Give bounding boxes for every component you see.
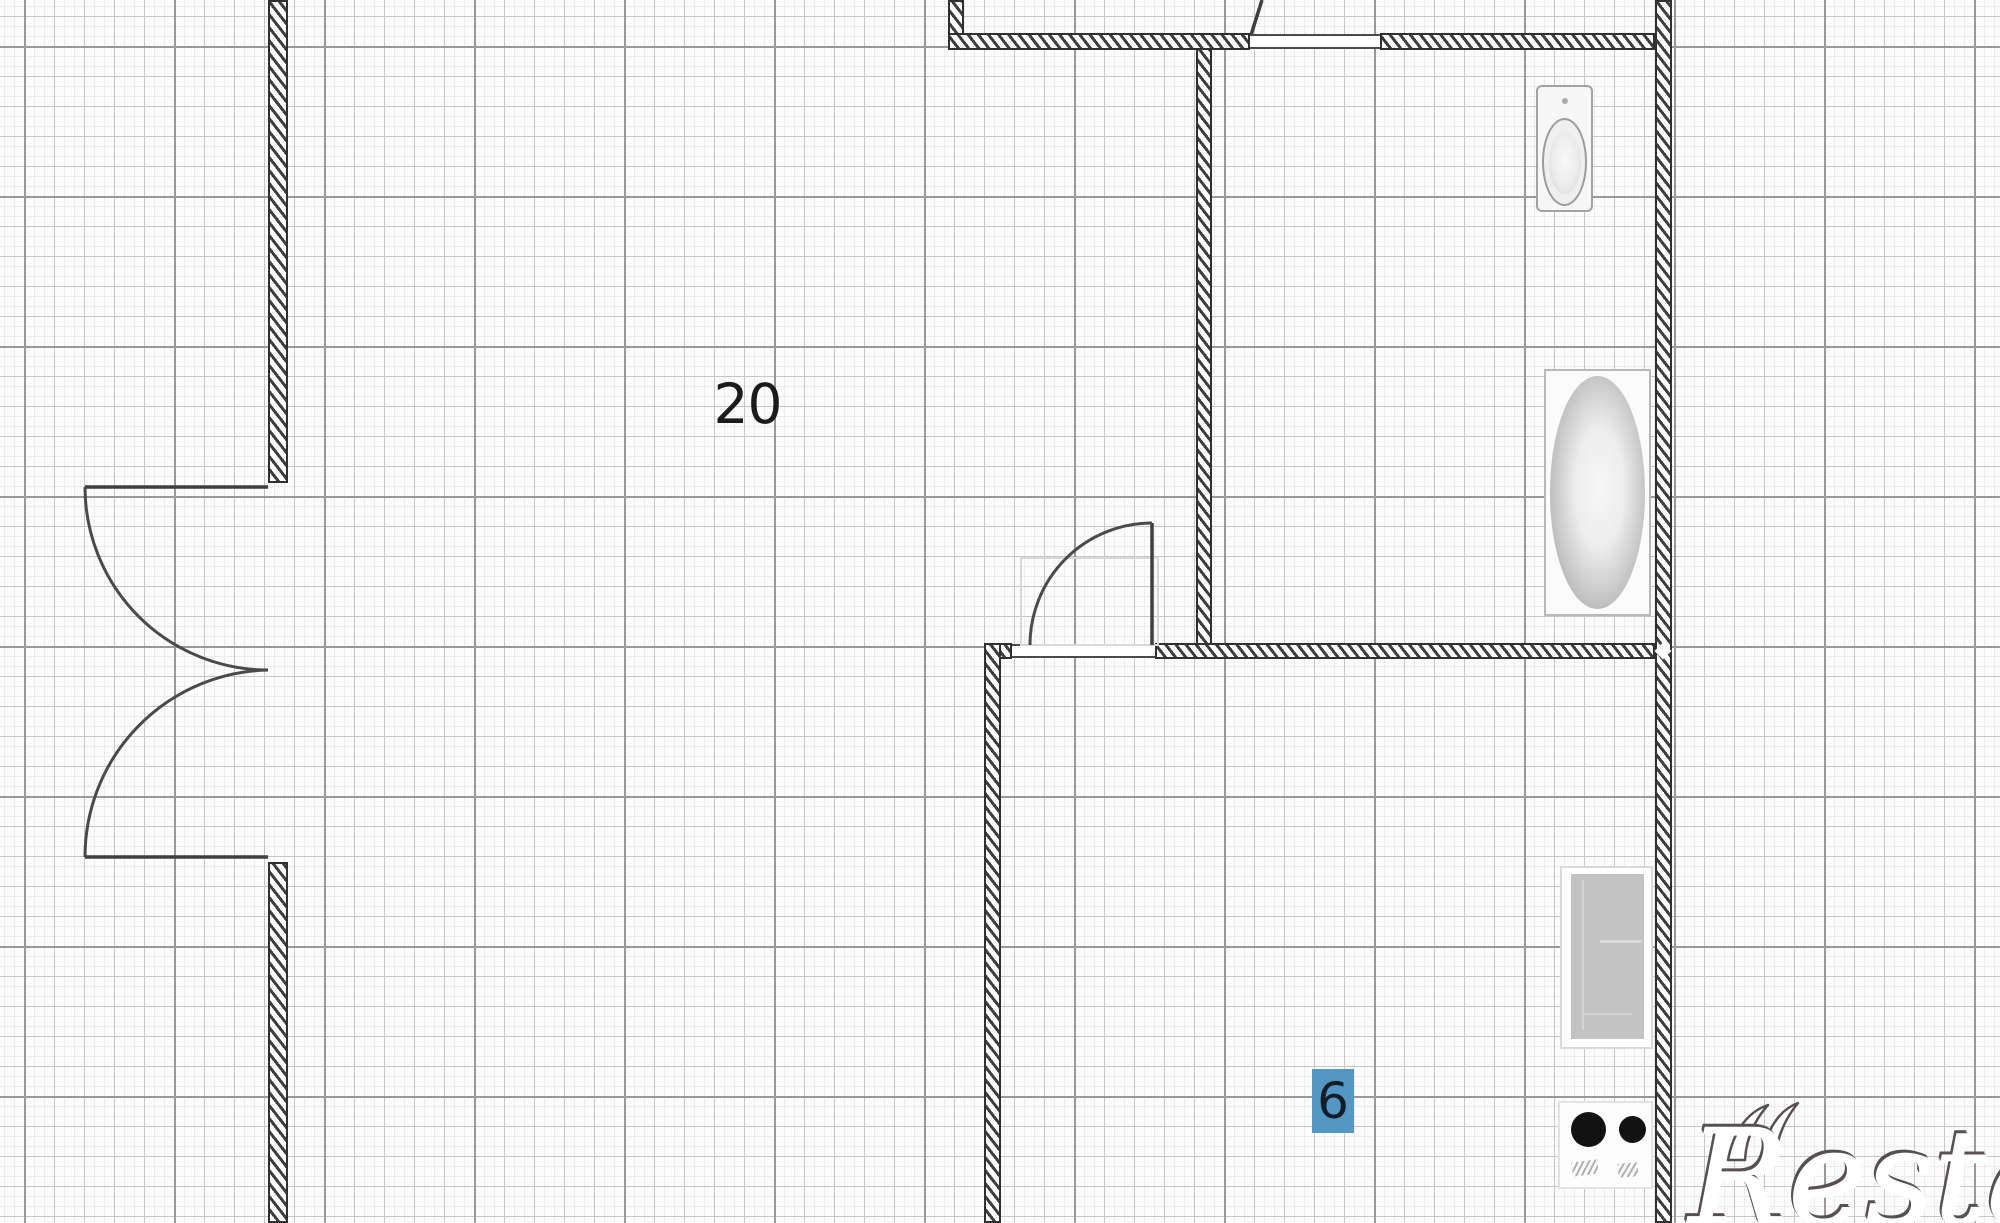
room-label-6-highlight: 6	[1312, 1069, 1354, 1133]
door-threshold-top	[1250, 34, 1380, 49]
double-door-swing-arc-bottom	[85, 670, 268, 857]
room-label-6: 6	[1317, 1072, 1349, 1130]
stove-knob-marks	[1571, 1159, 1599, 1176]
stove-icon	[1558, 1101, 1653, 1189]
bathtub-icon	[1544, 369, 1651, 616]
wall-left-lower	[268, 862, 288, 1223]
bathtub-basin	[1550, 376, 1645, 609]
kitchen-counter-icon	[1560, 866, 1653, 1049]
stove-burner-large-icon	[1571, 1112, 1606, 1147]
counter-detail-line	[1582, 1013, 1632, 1015]
watermark-text: Restate	[1688, 1112, 2000, 1223]
stove-knob-marks	[1618, 1162, 1639, 1177]
wall-left-upper	[268, 0, 288, 483]
wall-top-b	[1380, 33, 1655, 50]
door-threshold-kitchen	[1012, 644, 1155, 658]
top-room-door-leaf	[1251, 0, 1262, 35]
wall-bottom-b	[1155, 643, 1655, 659]
room-label-20: 20	[700, 372, 795, 436]
kitchen-door-swing-arc	[1030, 523, 1152, 645]
wall-bathroom-left	[1196, 48, 1212, 645]
counter-detail-line	[1582, 880, 1584, 1030]
toilet-icon	[1536, 85, 1593, 212]
stove-burner-small-icon	[1619, 1116, 1646, 1143]
counter-detail-line	[1600, 940, 1642, 943]
floor-plan-canvas: 20 6 Restate	[0, 0, 2000, 1223]
watermark: Restate	[1688, 1096, 2000, 1223]
wall-right	[1655, 0, 1672, 1223]
door-frame-outline	[1021, 558, 1158, 645]
double-door-swing-arc-top	[85, 487, 268, 670]
toilet-bowl	[1549, 132, 1581, 194]
toilet-flush-button	[1562, 98, 1568, 104]
wall-kitchen-left	[984, 643, 1001, 1223]
wall-top-room-left	[948, 0, 964, 37]
